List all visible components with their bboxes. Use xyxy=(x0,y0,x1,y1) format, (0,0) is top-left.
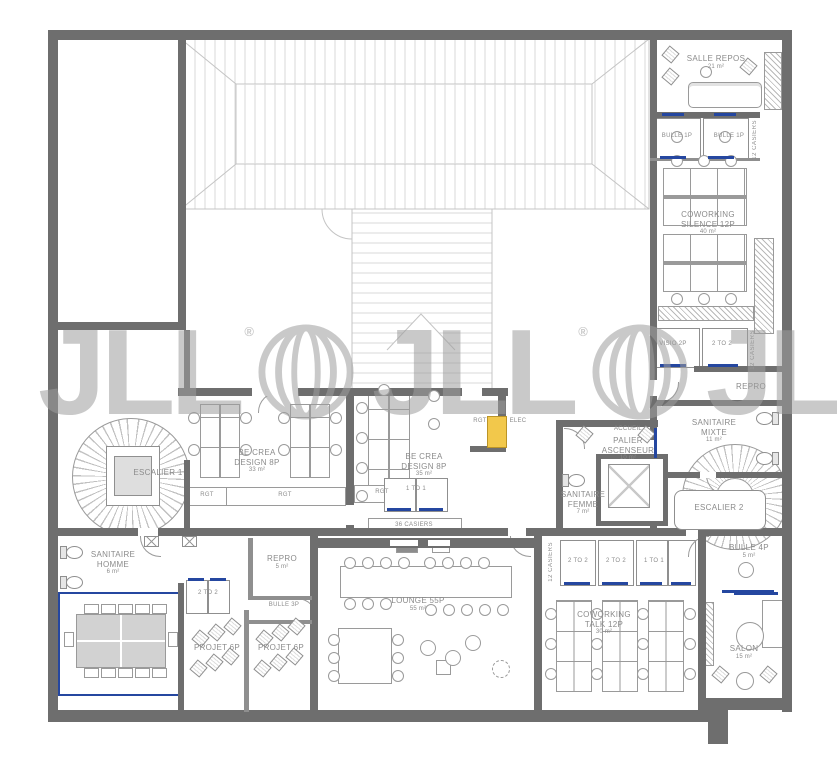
wall-kitchen xyxy=(318,538,536,548)
room-1to1-cell xyxy=(384,478,416,512)
armchair xyxy=(711,665,729,683)
room-label-elec: ELEC xyxy=(510,418,527,425)
wall-repro-left-bottom xyxy=(248,596,312,600)
plant xyxy=(492,660,510,678)
room-label-escalier-2: ESCALIER 2 xyxy=(694,503,743,513)
wall-bottom xyxy=(48,710,712,722)
room-1to1-cell xyxy=(416,478,448,512)
room-label-accueil: ACCUEIL xyxy=(614,426,642,433)
wall-meeting-right xyxy=(178,583,184,712)
room-label-bulle-1p-left: BULLE 1P xyxy=(662,133,692,140)
wall-projet-divider xyxy=(244,610,249,712)
room-label-be-crea-b: BE CREA DESIGN 8P 35 m² xyxy=(401,452,446,478)
cabinet xyxy=(762,600,784,648)
room-label-sanitaire-mixte: SANITAIRE MIXTE 11 m² xyxy=(692,418,736,444)
room-label-salle-repos: SALLE REPOS 21 m² xyxy=(687,54,745,71)
room-label-2to2-c: 2 TO 2 xyxy=(568,558,588,565)
armchair xyxy=(661,45,679,63)
wall-mixte-top xyxy=(650,400,790,406)
cabinet-label-rgt-b: RGT xyxy=(278,492,292,499)
wall-repro-left-side xyxy=(248,538,253,598)
room-label-2to2-d: 2 TO 2 xyxy=(606,558,626,565)
storage-rack xyxy=(754,238,774,334)
armchair xyxy=(759,665,777,683)
room-label-palier-ascenseur: PALIER ASCENSEUR 10 m² xyxy=(602,436,655,462)
wall-salon-left xyxy=(698,535,706,712)
room-label-sanitaire-femme: SANITAIRE FEMME 7 m² xyxy=(561,490,605,516)
desk-bank xyxy=(648,600,684,692)
room-label-bulle-4p: BULLE 4P 5 m² xyxy=(729,543,769,560)
room-label-1to1-b: 1 TO 1 xyxy=(644,558,664,565)
room-label-escalier-1: ESCALIER 1 xyxy=(133,468,182,478)
label-36-casiers: 36 CASIERS xyxy=(395,522,433,529)
room-label-coworking-talk: COWORKING TALK 12P 30 m² xyxy=(577,610,631,636)
wall-mixte-bottom xyxy=(650,472,790,478)
wall-stair1-right-b xyxy=(184,460,190,532)
wall-demise-vertical xyxy=(178,40,186,330)
lounge-table xyxy=(338,628,392,684)
desk-bank xyxy=(663,234,747,292)
desk-bank xyxy=(290,404,330,478)
wall-top xyxy=(48,30,792,40)
wall-bottom-right xyxy=(700,698,792,710)
locker-bank xyxy=(658,306,754,321)
wall-stub xyxy=(708,710,728,744)
storage-rack xyxy=(764,52,782,110)
room-label-coworking-silence: COWORKING SILENCE 12P 40 m² xyxy=(681,210,735,236)
room-label-projet-a: PROJET 6P xyxy=(194,643,240,653)
room-label-repro-right: REPRO xyxy=(736,382,766,392)
room-label-lounge: LOUNGE 55P 55 m² xyxy=(391,596,444,613)
wall-becrea-top xyxy=(178,388,508,396)
elevator-car xyxy=(608,464,650,508)
wall-lounge-right xyxy=(534,535,542,712)
room-label-1to1-a: 1 TO 1 xyxy=(406,486,426,493)
room-label-repro-left: REPRO 5 m² xyxy=(267,554,297,571)
cabinet-label-rgt-d: RGT xyxy=(473,418,487,425)
label-12-casiers-mid: 12 CASIERS xyxy=(750,330,756,370)
cabinet-label-rgt-a: RGT xyxy=(200,492,214,499)
room-label-2to2-a: 2 TO 2 xyxy=(712,341,732,348)
wall-demise-horizontal xyxy=(56,322,186,330)
electrical-cabinet xyxy=(487,416,507,448)
room-label-bulle-3p: BULLE 3P xyxy=(269,602,299,609)
wall-right-wing xyxy=(650,40,657,302)
room-label-be-crea-a: BE CREA DESIGN 8P 33 m² xyxy=(234,448,279,474)
cabinet-label-rgt-c: RGT xyxy=(375,489,389,496)
wall-left xyxy=(48,30,58,722)
label-12-casiers-bottom: 12 CASIERS xyxy=(548,542,554,582)
room-label-bulle-1p-right: BULLE 1P xyxy=(714,133,744,140)
floor-plan: SALLE REPOS 21 m² BULLE 1P BULLE 1P 12 C… xyxy=(0,0,837,757)
bar-counter xyxy=(340,566,512,598)
sofa xyxy=(688,82,762,108)
room-label-2to2-b: 2 TO 2 xyxy=(198,590,218,597)
room-label-salon: SALON 15 m² xyxy=(730,644,759,661)
wall-stair1-right-a xyxy=(184,330,190,392)
room-label-sanitaire-homme: SANITAIRE HOMME 6 m² xyxy=(91,550,135,576)
label-12-casiers-top: 12 CASIERS xyxy=(752,120,758,160)
room-label-visio-2p: VISIO 2P xyxy=(659,341,686,348)
armchair xyxy=(661,67,679,85)
room-label-projet-b: PROJET 6P xyxy=(258,643,304,653)
wall-palier-top xyxy=(556,420,658,427)
roof-plan xyxy=(180,38,655,394)
meeting-table xyxy=(76,614,166,668)
